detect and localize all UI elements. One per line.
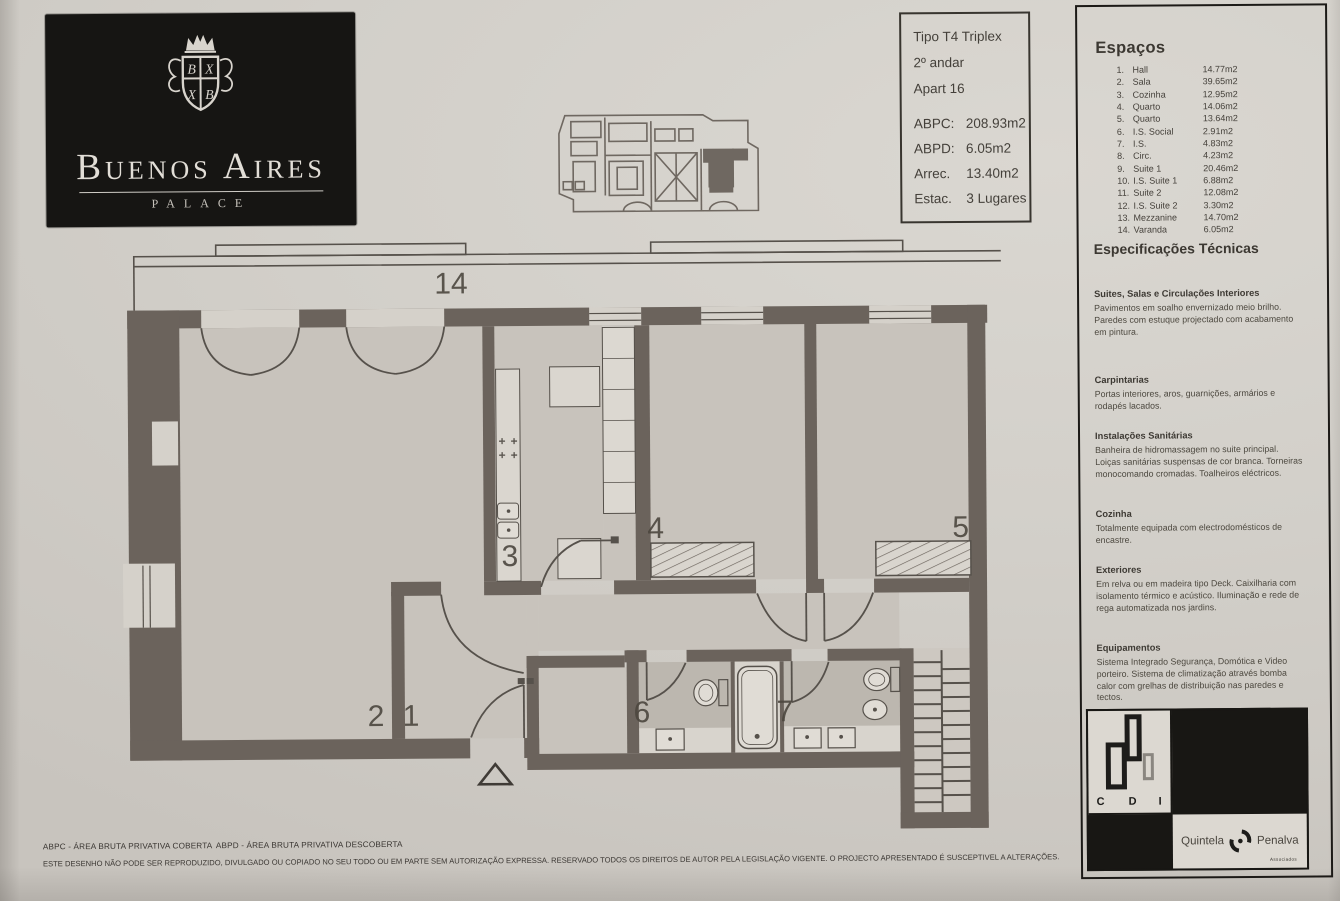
spaces-list: 1.Hall14.77m2 2.Sala39.65m2 3.Cozinha12.… <box>1116 63 1303 237</box>
svg-text:X: X <box>187 87 197 102</box>
spec-panel: Espaços 1.Hall14.77m2 2.Sala39.65m2 3.Co… <box>1075 3 1333 879</box>
site-key-plan <box>543 102 779 230</box>
metric-abpc: ABPC: 208.93m2 <box>914 110 1029 136</box>
svg-text:B: B <box>205 87 214 102</box>
cdi-logo-icon <box>1088 711 1171 792</box>
cdi-letter-d: D <box>1129 796 1137 808</box>
label-varanda: 14 <box>434 267 468 300</box>
black-cell <box>1089 815 1171 870</box>
spec-section-exteriores: Exteriores Em relva ou em madeira tipo D… <box>1096 564 1304 615</box>
label-sala: 2 <box>368 700 385 733</box>
spec-section-cozinha: Cozinha Totalmente equipada com electrod… <box>1096 508 1304 547</box>
spec-section-interiores: Suites, Salas e Circulações Interiores P… <box>1094 288 1302 339</box>
logos-block: C D I Quintela Penalva Associados <box>1086 708 1309 872</box>
svg-text:B: B <box>187 62 196 77</box>
unit-number: Apart 16 <box>914 75 1029 102</box>
quintela-penalva-logo: Quintela Penalva Associados <box>1173 814 1307 869</box>
label-is-social: 6 <box>633 696 650 729</box>
footer-abbr-abpd: ABPD - ÁREA BRUTA PRIVATIVA DESCOBERTA <box>216 840 403 850</box>
brand-name: Buenos Aires <box>46 147 356 186</box>
label-quarto-4: 4 <box>647 512 664 545</box>
spec-section-sanitarias: Instalações Sanitárias Banheira de hidro… <box>1095 430 1303 481</box>
label-quarto-5: 5 <box>952 511 969 544</box>
metric-arrec: Arrec. 13.40m2 <box>914 160 1029 186</box>
unit-floor: 2º andar <box>913 49 1028 76</box>
black-cell <box>1172 710 1307 815</box>
metric-estac: Estac. 3 Lugares <box>914 185 1029 211</box>
highlighted-unit <box>703 148 748 192</box>
heraldic-crest-icon: BX XB <box>130 31 271 140</box>
svg-text:X: X <box>204 61 214 76</box>
label-hall: 1 <box>403 700 420 733</box>
unit-info-box: Tipo T4 Triplex 2º andar Apart 16 ABPC: … <box>899 11 1031 223</box>
brand-subtitle: PALACE <box>46 195 356 212</box>
quintela-word: Quintela <box>1181 835 1224 847</box>
floor-plan-drawing: 14 3 4 5 2 1 6 7 <box>121 238 1005 836</box>
footer-disclaimer: ESTE DESENHO NÃO PODE SER REPRODUZIDO, D… <box>43 852 1059 868</box>
balcony-outline <box>134 239 1005 310</box>
cdi-letter-c: C <box>1097 796 1105 808</box>
scanned-floorplan-sheet: BX XB Buenos Aires PALACE <box>0 0 1340 901</box>
metric-abpd: ABPD: 6.05m2 <box>914 135 1029 161</box>
penalva-word: Penalva <box>1257 835 1299 847</box>
footer-abbr-abpc: ABPC - ÁREA BRUTA PRIVATIVA COBERTA <box>43 841 213 851</box>
label-cozinha: 3 <box>501 540 518 573</box>
specs-title: Especificações Técnicas <box>1094 240 1259 257</box>
buenos-aires-logo-box: BX XB Buenos Aires PALACE <box>45 12 356 227</box>
unit-type: Tipo T4 Triplex <box>913 23 1028 50</box>
penalva-subtext: Associados <box>1270 857 1297 862</box>
cdi-letter-i: I <box>1159 796 1162 808</box>
spaces-title: Espaços <box>1095 39 1165 58</box>
list-item: 14.Varanda6.05m2 <box>1118 223 1304 237</box>
spec-section-equipamentos: Equipamentos Sistema Integrado Segurança… <box>1096 642 1304 705</box>
cdi-logo: C D I <box>1088 711 1173 816</box>
entrance-arrow <box>479 764 511 784</box>
quintela-penalva-swirl-icon <box>1229 829 1252 853</box>
label-is: 7 <box>776 695 793 728</box>
spec-section-carpintarias: Carpintarias Portas interiores, aros, gu… <box>1095 374 1303 413</box>
brand-divider <box>79 190 323 193</box>
